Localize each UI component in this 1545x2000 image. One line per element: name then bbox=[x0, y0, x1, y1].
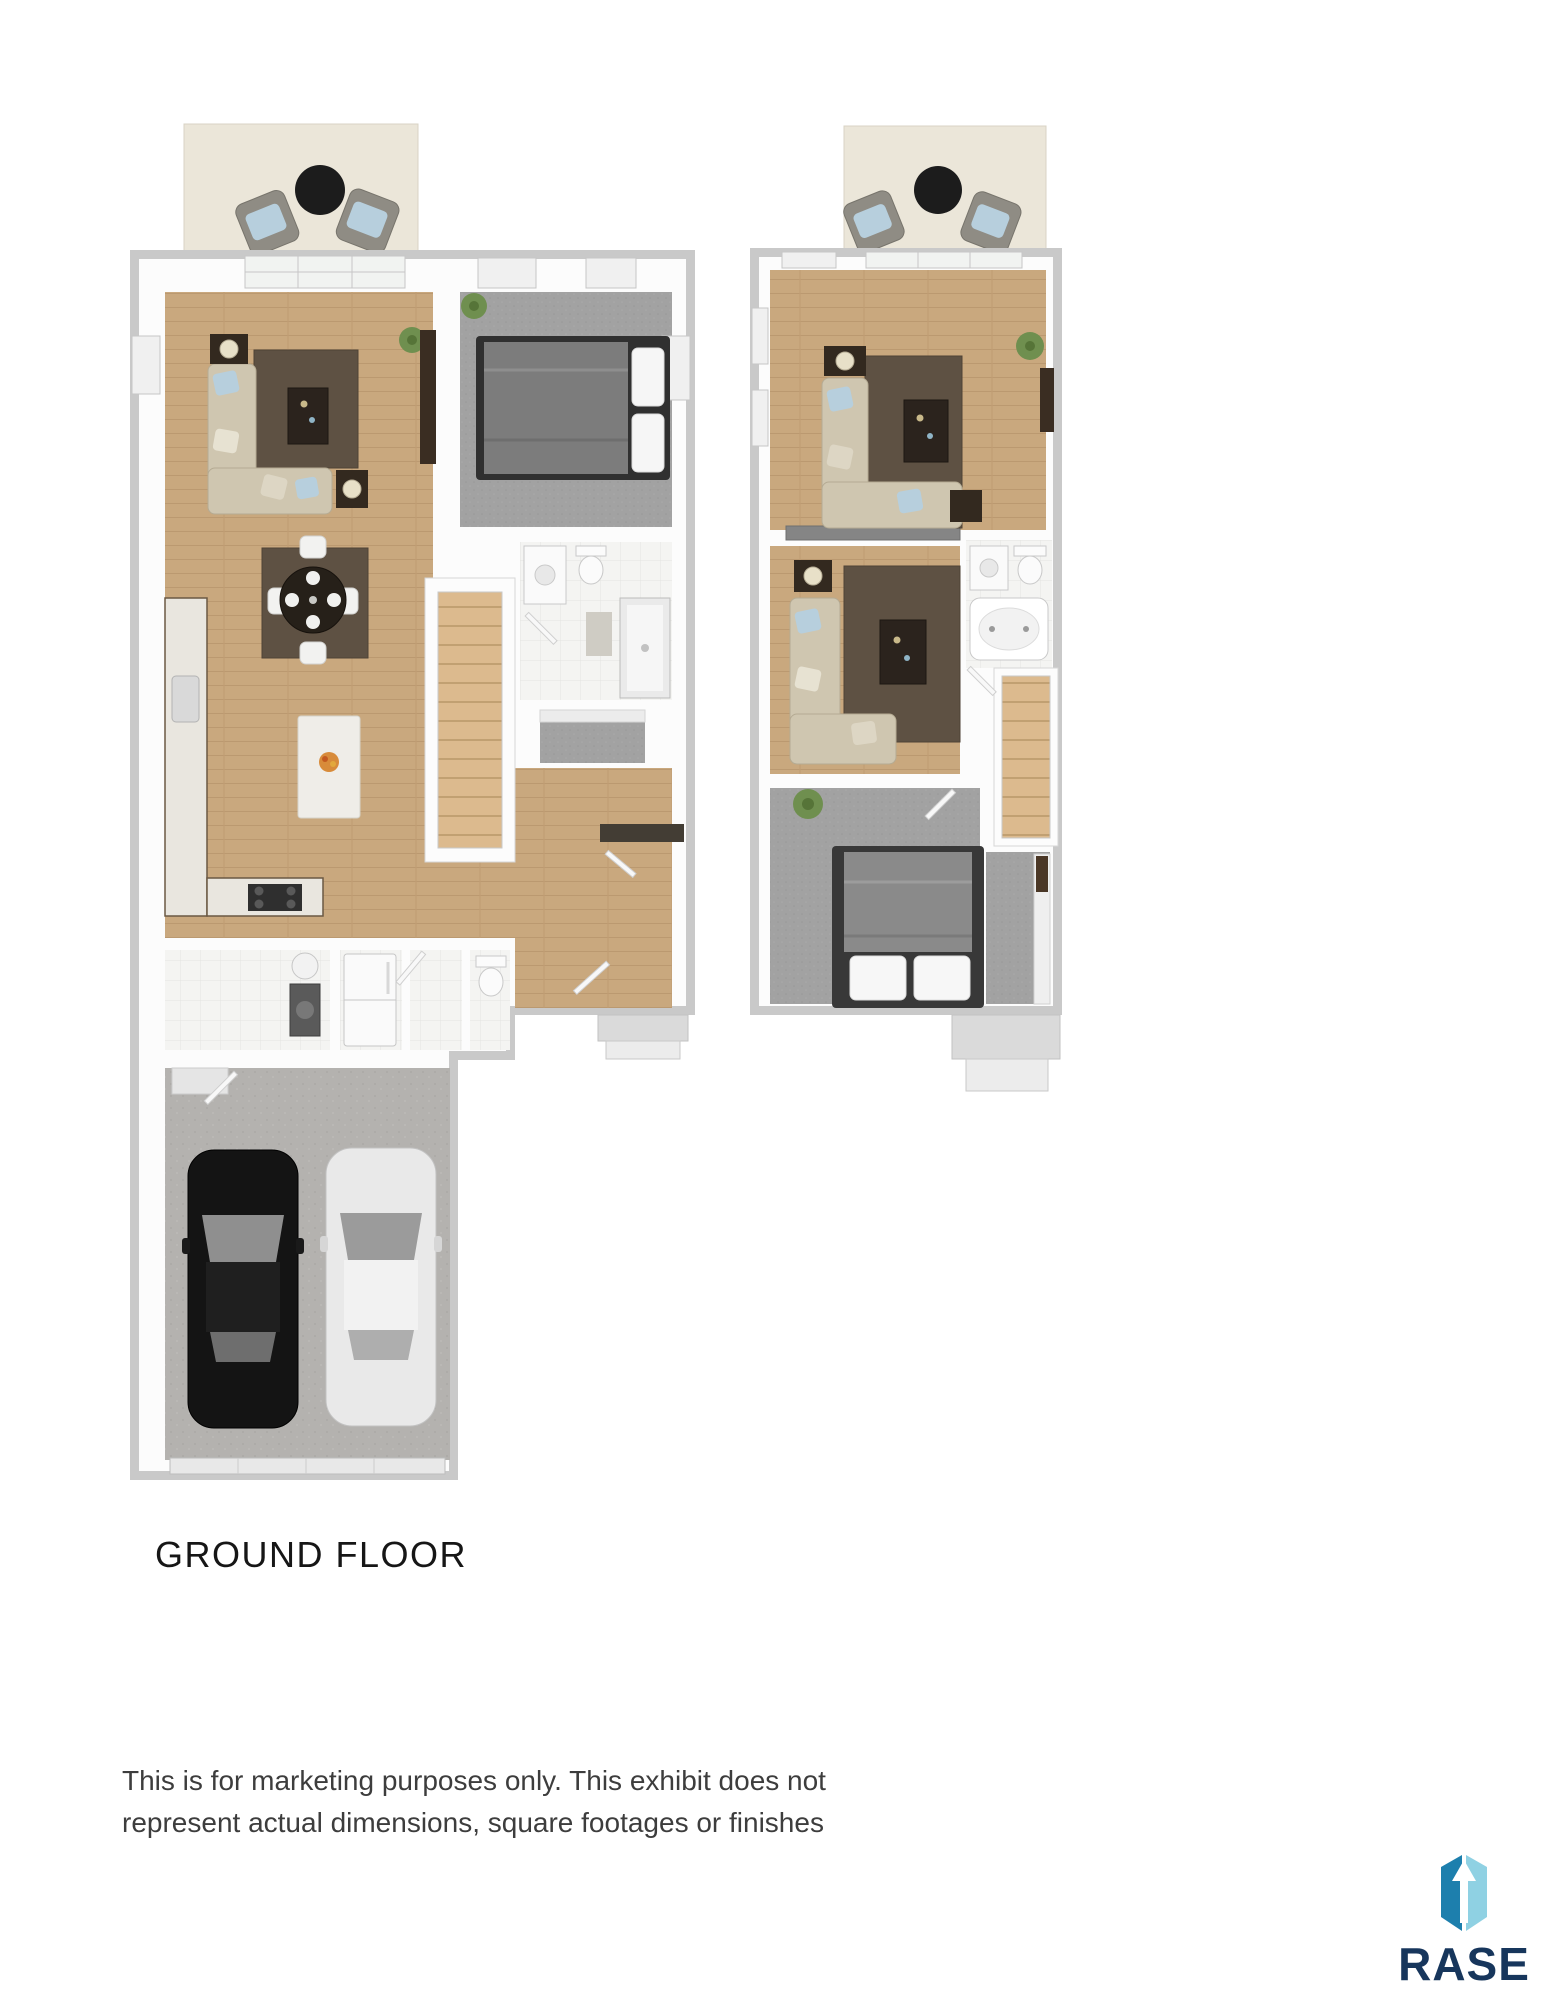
logo-box-left-face bbox=[1441, 1855, 1462, 1931]
living-window-left bbox=[132, 336, 160, 394]
family-coffee-table bbox=[880, 620, 926, 684]
disclaimer-text: This is for marketing purposes only. Thi… bbox=[122, 1760, 1022, 1844]
stair-treads bbox=[438, 592, 502, 848]
logo-box-right-face bbox=[1466, 1855, 1487, 1931]
logo-wordmark: RASE bbox=[1383, 1937, 1545, 1991]
toilet-bowl bbox=[479, 968, 503, 996]
black-car bbox=[182, 1150, 304, 1428]
loft-window-left-1 bbox=[752, 308, 768, 364]
patio-round-table bbox=[295, 165, 345, 215]
ground-patio bbox=[184, 124, 418, 257]
rase-box-arrow-icon bbox=[1431, 1843, 1497, 1935]
upper-toilet-tank bbox=[1014, 546, 1046, 556]
upper-bed-pillow bbox=[850, 956, 906, 1000]
closet-shelf bbox=[540, 710, 645, 722]
toilet-tank bbox=[476, 956, 506, 967]
ground-stairs bbox=[425, 578, 515, 862]
sofa-pillow bbox=[294, 476, 319, 500]
ground-floor-plan bbox=[130, 124, 695, 1480]
upper-hall-closet bbox=[1034, 854, 1050, 1004]
disclaimer-line-2: represent actual dimensions, square foot… bbox=[122, 1802, 1022, 1844]
upper-toilet-bowl bbox=[1018, 556, 1042, 584]
entry-doormat bbox=[600, 824, 684, 842]
garage-door-band bbox=[170, 1458, 445, 1474]
loft-console bbox=[1040, 368, 1054, 432]
balcony-sliding-door bbox=[866, 252, 1022, 268]
water-heater bbox=[292, 953, 318, 979]
bath-toilet-tank bbox=[576, 546, 606, 556]
dining-chair-top bbox=[300, 536, 326, 558]
kitchen-sink bbox=[172, 676, 199, 722]
ground-hall-neck-floor bbox=[433, 862, 515, 938]
floor-plans-canvas bbox=[0, 0, 1545, 2000]
bed-pillow bbox=[632, 348, 664, 406]
loft-side-table-2 bbox=[950, 490, 982, 522]
loft-coffee-table bbox=[904, 400, 948, 462]
bath-toilet-bowl bbox=[579, 556, 603, 584]
bedroom-window-2 bbox=[586, 258, 636, 288]
entry-porch-step-2 bbox=[606, 1041, 680, 1059]
upper-bed-pillow bbox=[914, 956, 970, 1000]
upper-landing-step-2 bbox=[966, 1059, 1048, 1091]
balcony-round-table bbox=[914, 166, 962, 214]
ground-floor-label: GROUND FLOOR bbox=[155, 1534, 467, 1576]
upper-balcony bbox=[841, 126, 1046, 256]
loft-window-top bbox=[782, 252, 836, 268]
loft-sofa-seat bbox=[822, 482, 962, 528]
family-pillow bbox=[851, 720, 878, 745]
fruit-bowl bbox=[319, 752, 339, 772]
living-coffee-table bbox=[288, 388, 328, 444]
bed-pillow bbox=[632, 414, 664, 472]
rase-logo: RASE bbox=[1383, 1843, 1545, 1991]
loft-pillow bbox=[896, 488, 923, 514]
disclaimer-line-1: This is for marketing purposes only. Thi… bbox=[122, 1760, 1022, 1802]
ground-dining-area bbox=[262, 536, 368, 664]
entry-porch-step-1 bbox=[598, 1015, 688, 1041]
dining-chair-bottom bbox=[300, 642, 326, 664]
second-floor-plan bbox=[750, 126, 1062, 1091]
sofa-pillow bbox=[212, 428, 239, 454]
bed-blanket bbox=[484, 342, 628, 474]
upper-stairs bbox=[994, 668, 1058, 846]
media-console bbox=[420, 330, 436, 464]
bedroom-window-1 bbox=[478, 258, 536, 288]
upper-stair-treads bbox=[1002, 676, 1050, 838]
white-car bbox=[320, 1148, 442, 1426]
mud-hall-floor bbox=[410, 950, 462, 1050]
loft-window-left-2 bbox=[752, 390, 768, 446]
upper-family-room bbox=[790, 560, 960, 764]
kitchen-counter-left bbox=[165, 598, 207, 916]
upper-landing-step-1 bbox=[952, 1015, 1060, 1059]
bath-mat bbox=[586, 612, 612, 656]
family-sofa-seat bbox=[790, 714, 896, 764]
